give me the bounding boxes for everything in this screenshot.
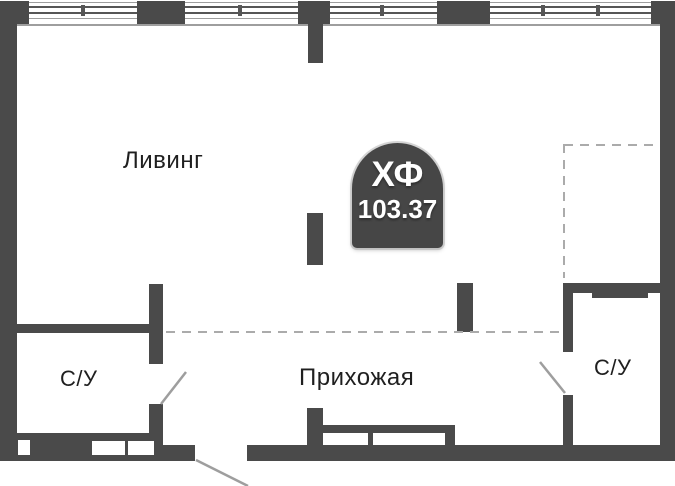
door-swing-line-bathroom-right — [540, 362, 565, 393]
room-label-bathroom-right: С/У — [594, 355, 631, 381]
window-mullion — [541, 5, 545, 16]
shaft-opening — [128, 441, 154, 455]
area-badge-title: ХФ — [372, 157, 424, 192]
shaft-opening — [92, 441, 125, 455]
entry-cabinet-cap — [445, 431, 455, 445]
wall-bathroom-right-top-lip — [592, 293, 648, 298]
wall-stub-center — [307, 213, 323, 265]
area-badge-marker[interactable]: ХФ 103.37 — [352, 143, 443, 248]
room-label-bathroom-left: С/У — [60, 366, 97, 392]
wall-bottom-left-segment — [163, 445, 195, 461]
shaft-opening — [18, 440, 30, 455]
entry-wall-stub — [307, 408, 323, 445]
window-mullion — [380, 5, 384, 16]
wall-pier-top-3 — [298, 1, 330, 24]
wall-bathroom-right-top — [563, 283, 675, 293]
wall-stub-hallway — [457, 283, 473, 332]
zone-divider-dashed-line — [166, 331, 564, 333]
door-swing-line-bathroom-left — [161, 372, 186, 404]
wall-bathroom-right-left-lower — [563, 395, 573, 445]
wall-bathroom-left-right-upper — [149, 284, 163, 364]
window-mullion — [81, 5, 85, 16]
entry-cabinet-divider — [368, 431, 373, 445]
floor-plan: Ливинг Прихожая С/У С/У ХФ 103.37 — [0, 0, 675, 486]
wall-pier-top-2 — [137, 1, 185, 24]
window-mullion — [596, 5, 600, 16]
wall-bathroom-left-top — [0, 324, 163, 333]
wall-bathroom-left-right-lower — [149, 404, 163, 433]
area-badge-value: 103.37 — [358, 196, 438, 222]
top-wall-inner-face-line — [0, 24, 675, 26]
room-label-hallway: Прихожая — [299, 364, 414, 392]
wall-pier-top-4 — [437, 1, 490, 24]
window-mullion — [238, 5, 242, 16]
window-frame-inner-line — [29, 18, 651, 19]
door-swing-overlay — [0, 0, 675, 486]
door-swing-line-entrance — [196, 460, 248, 486]
wall-exterior-right — [660, 1, 675, 461]
wall-bottom-main — [247, 445, 675, 461]
window-glazing — [490, 6, 651, 8]
wall-stub-top-center — [308, 24, 323, 63]
wardrobe-zone-dashed-top — [564, 144, 660, 146]
wall-exterior-left — [0, 1, 17, 461]
window-glazing — [490, 12, 651, 14]
entry-cabinet-top — [323, 425, 455, 433]
room-label-living: Ливинг — [123, 147, 203, 175]
wall-bathroom-right-left-upper — [563, 283, 573, 352]
window-frame-top-line — [29, 2, 651, 3]
wardrobe-zone-dashed-left — [563, 144, 565, 278]
